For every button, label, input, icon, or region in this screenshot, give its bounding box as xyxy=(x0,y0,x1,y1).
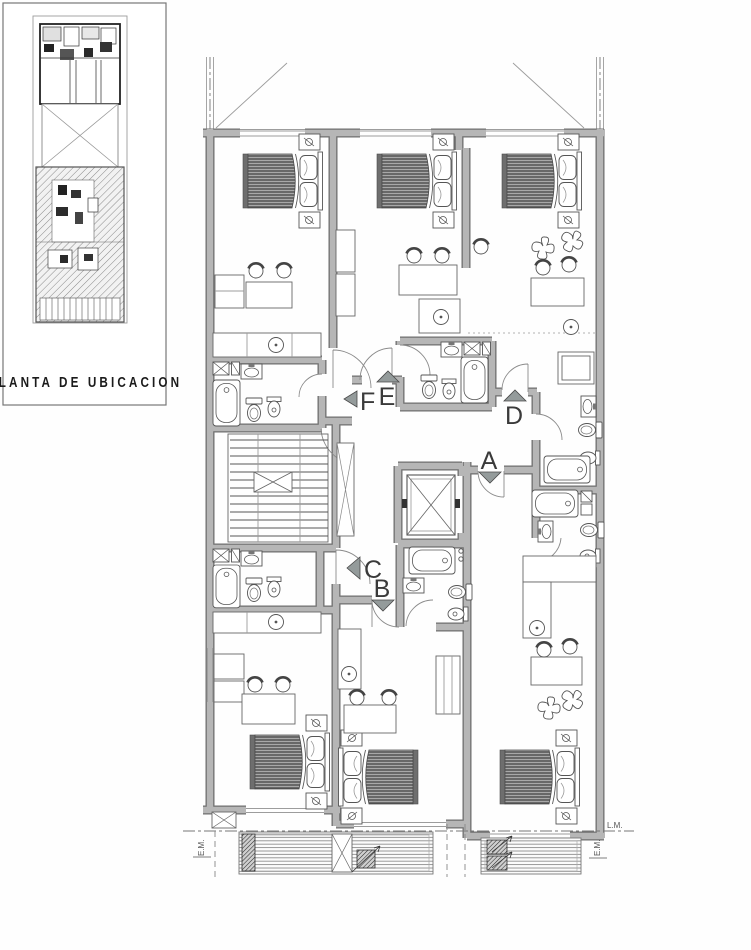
double-bed-unit-c xyxy=(250,715,330,809)
double-bed-unit-a xyxy=(500,730,580,824)
balcony-deck-right xyxy=(481,836,581,874)
living-unit-a xyxy=(523,556,596,719)
unit-label-d: D xyxy=(505,402,523,430)
planter-box xyxy=(242,834,255,871)
unit-label-e: E xyxy=(379,383,396,411)
double-bed-unit-d xyxy=(502,134,582,228)
double-bed-unit-f xyxy=(243,134,323,228)
location-inset: PLANTA DE UBICACION xyxy=(0,3,182,405)
entry-arrow-f xyxy=(344,391,357,407)
elevator-door-mark xyxy=(402,499,407,508)
bathroom-unit-e xyxy=(421,342,491,403)
label-em-right: E.M. xyxy=(593,840,602,856)
double-bed-unit-b xyxy=(339,730,419,824)
main-floor-plan: A B C D E F E.M. E.M. L.M. xyxy=(183,57,634,877)
unit-label-c: C xyxy=(364,556,382,584)
entry-arrow-c xyxy=(347,557,360,579)
inset-lower-building xyxy=(36,167,124,322)
bathroom-unit-d xyxy=(544,396,602,483)
elevator xyxy=(402,475,460,535)
elevator-door-mark xyxy=(455,499,460,508)
inset-upper-building xyxy=(40,24,120,104)
staircase xyxy=(228,434,328,542)
corner-pillar xyxy=(212,812,236,828)
inset-courtyard xyxy=(42,104,118,167)
floor-plan-canvas: PLANTA DE UBICACION xyxy=(0,0,751,950)
architectural-drawing-page: PLANTA DE UBICACION xyxy=(0,0,751,950)
balcony-deck-left xyxy=(239,832,433,874)
living-unit-b xyxy=(338,629,397,733)
label-lm: L.M. xyxy=(607,821,623,830)
bathroom-unit-b xyxy=(403,547,472,621)
entry-arrow-d xyxy=(504,390,526,401)
service-duct xyxy=(337,443,354,536)
kitchen-unit-f xyxy=(213,263,321,357)
dining-unit-e xyxy=(399,248,460,333)
bathroom-unit-a xyxy=(532,490,604,563)
unit-label-f: F xyxy=(360,388,375,416)
double-bed-unit-e xyxy=(377,134,457,228)
unit-label-a: A xyxy=(481,447,498,475)
bathroom-unit-f xyxy=(213,362,281,426)
inset-title: PLANTA DE UBICACION xyxy=(0,374,182,391)
living-unit-c xyxy=(213,612,321,724)
bathroom-unit-c xyxy=(213,549,281,608)
label-em-left: E.M. xyxy=(197,840,206,856)
